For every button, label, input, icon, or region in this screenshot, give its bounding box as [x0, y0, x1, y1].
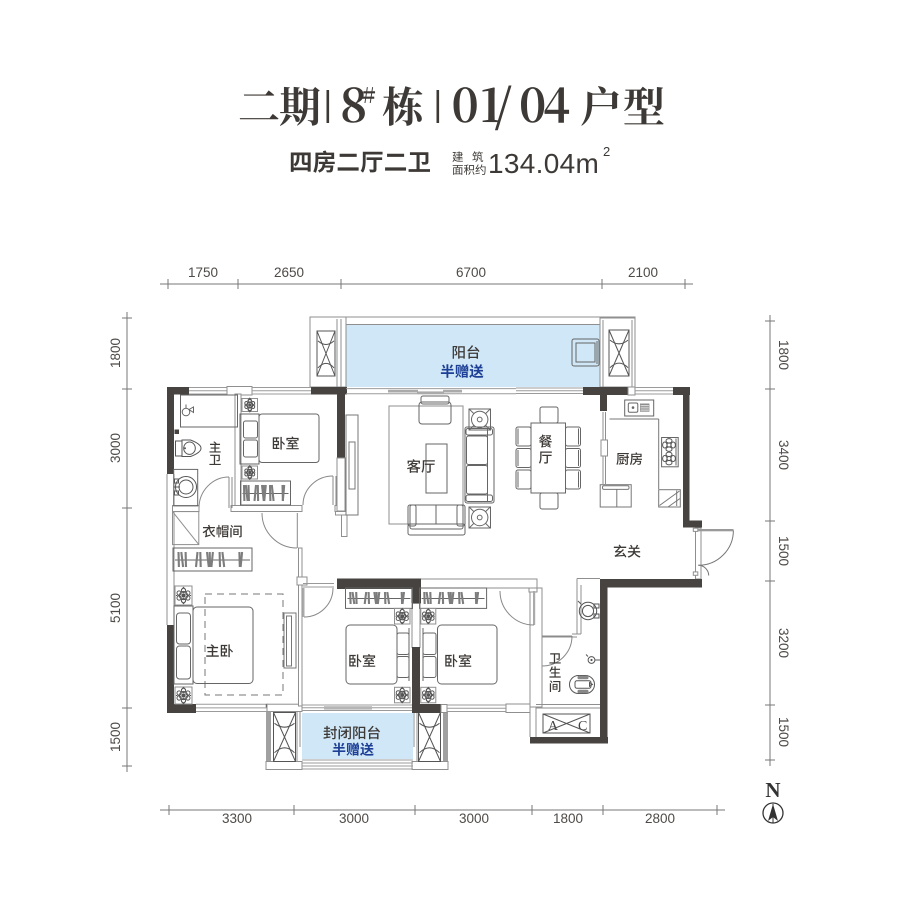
svg-text:3400: 3400 [776, 440, 791, 470]
svg-text:1500: 1500 [108, 722, 123, 752]
svg-text:1800: 1800 [108, 338, 123, 368]
svg-text:3000: 3000 [339, 811, 369, 826]
svg-text:1800: 1800 [553, 811, 583, 826]
svg-text:1800: 1800 [776, 340, 791, 370]
svg-text:2650: 2650 [274, 265, 304, 280]
svg-text:2100: 2100 [628, 265, 658, 280]
svg-text:5100: 5100 [108, 593, 123, 623]
svg-text:3300: 3300 [222, 811, 252, 826]
svg-text:N: N [765, 778, 780, 802]
svg-text:1750: 1750 [188, 265, 218, 280]
svg-text:1500: 1500 [776, 717, 791, 747]
svg-text:3000: 3000 [459, 811, 489, 826]
svg-text:C: C [578, 719, 587, 734]
svg-text:134.04m: 134.04m [488, 148, 599, 179]
svg-text:3200: 3200 [776, 628, 791, 658]
svg-text:1500: 1500 [776, 536, 791, 566]
svg-text:6700: 6700 [456, 265, 486, 280]
svg-text:2: 2 [603, 144, 610, 159]
svg-text:A: A [548, 719, 559, 734]
svg-text:2800: 2800 [645, 811, 675, 826]
svg-text:3000: 3000 [108, 433, 123, 463]
